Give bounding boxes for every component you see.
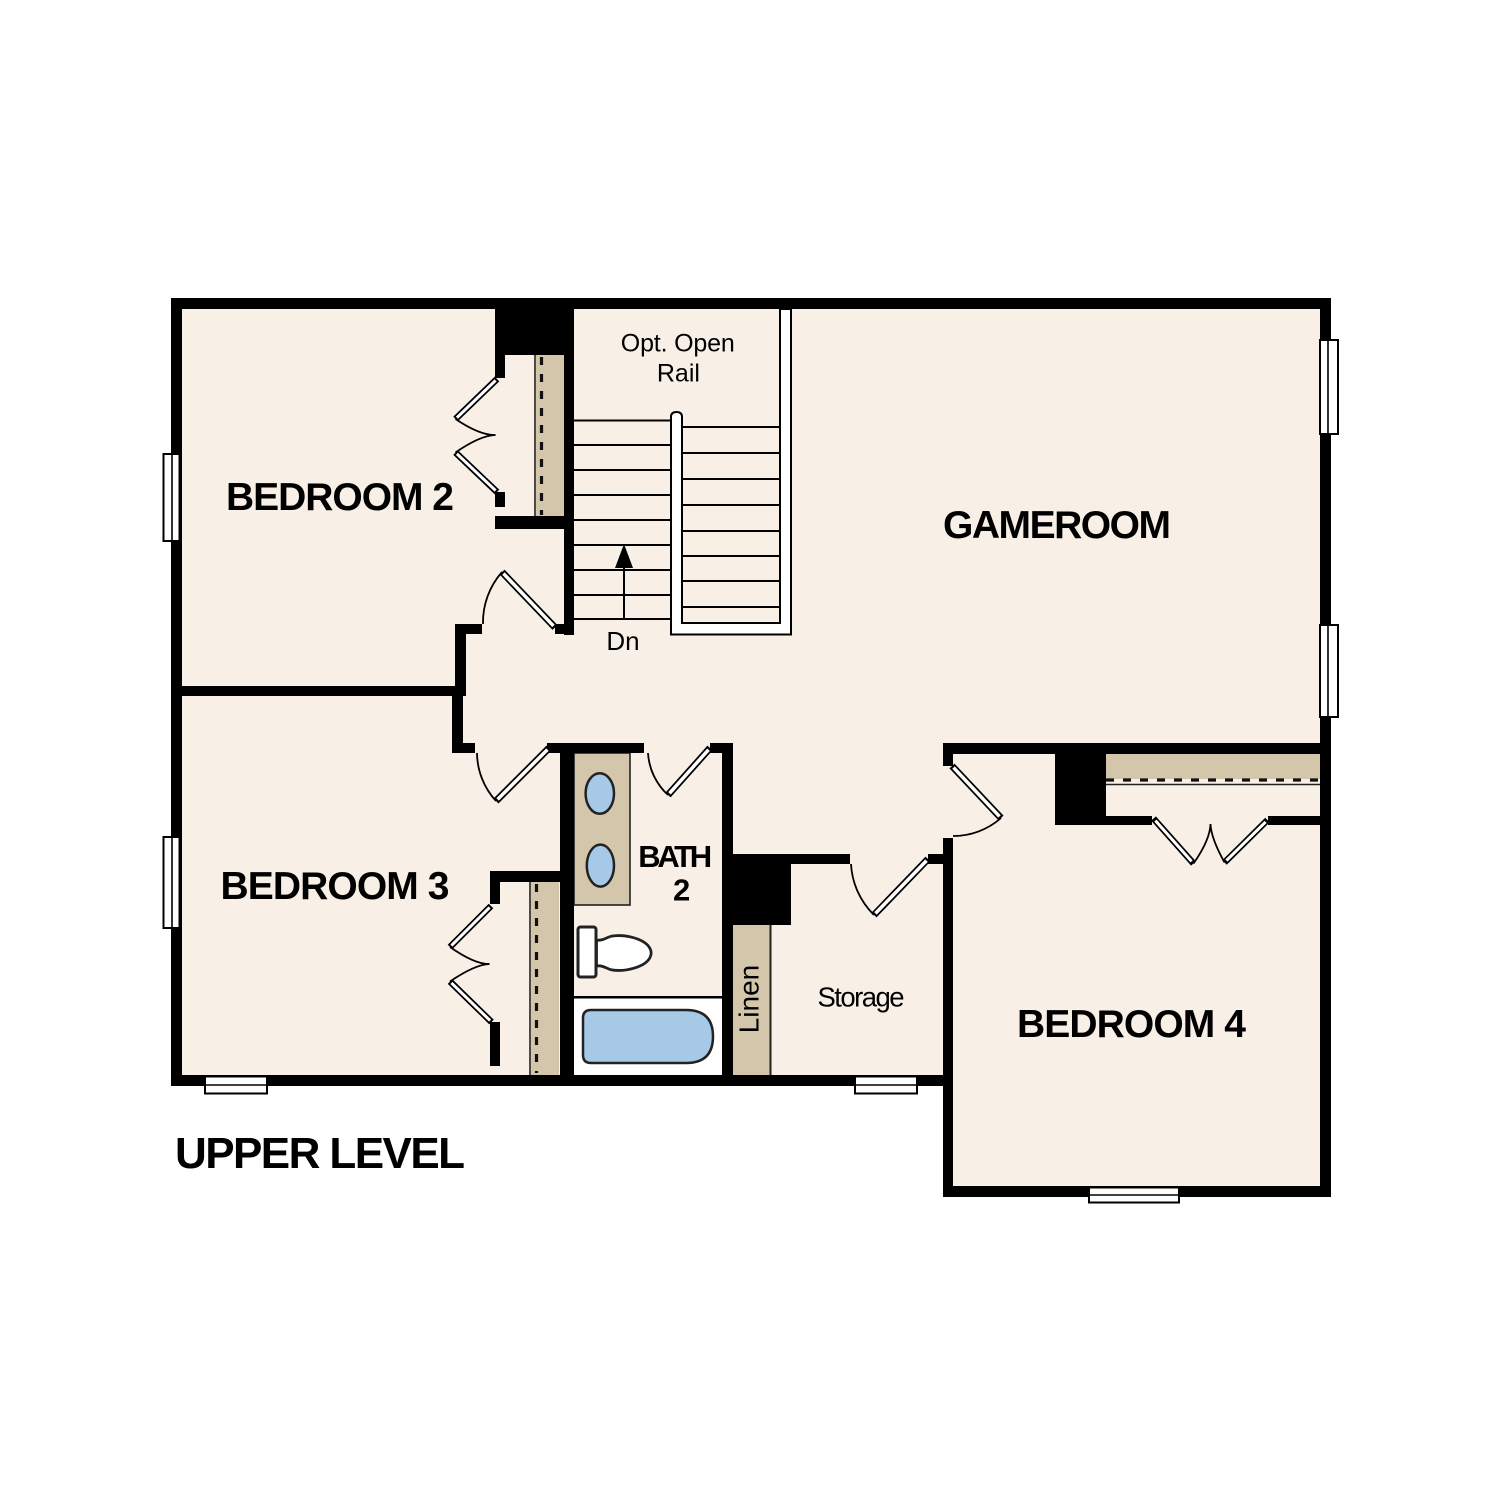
- svg-text:BEDROOM 4: BEDROOM 4: [1017, 1003, 1246, 1046]
- svg-text:2: 2: [673, 873, 690, 908]
- svg-text:BEDROOM 3: BEDROOM 3: [221, 865, 450, 908]
- svg-text:Opt. Open: Opt. Open: [621, 330, 735, 358]
- svg-text:BEDROOM 2: BEDROOM 2: [226, 476, 454, 519]
- svg-text:UPPER LEVEL: UPPER LEVEL: [175, 1129, 465, 1178]
- svg-text:GAMEROOM: GAMEROOM: [943, 504, 1171, 547]
- svg-text:Storage: Storage: [818, 982, 905, 1013]
- svg-text:Rail: Rail: [657, 360, 700, 388]
- svg-text:Dn: Dn: [606, 626, 639, 656]
- svg-text:Linen: Linen: [734, 965, 765, 1034]
- svg-text:BATH: BATH: [638, 839, 712, 874]
